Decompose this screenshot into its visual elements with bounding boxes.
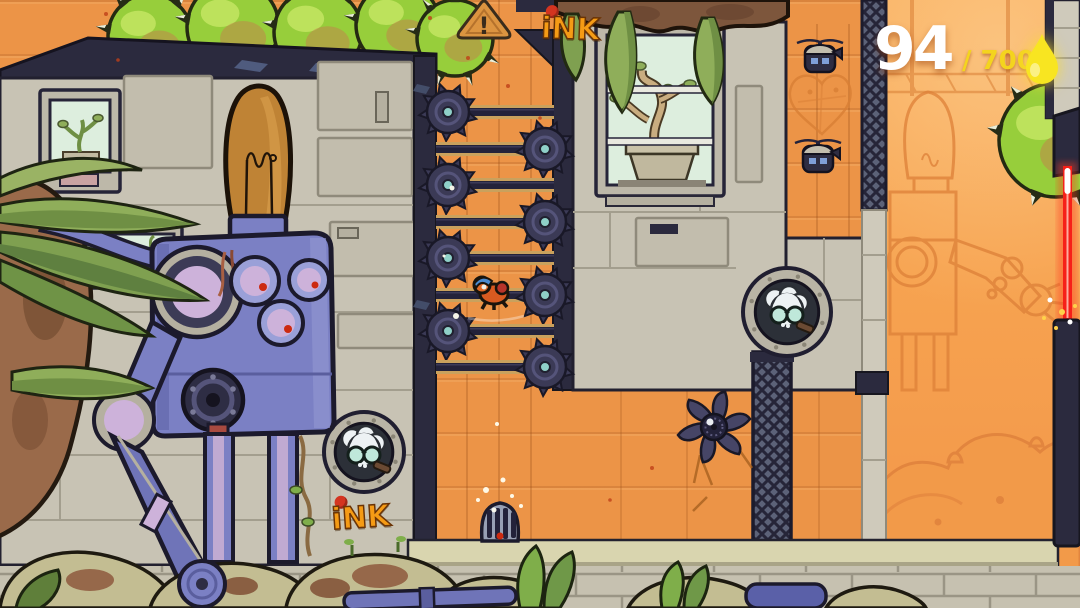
robot-valve-wheel bbox=[183, 370, 243, 430]
game-viewport[interactable]: ! bbox=[0, 0, 1080, 608]
robot-legs bbox=[205, 434, 297, 562]
robot-bulb-head bbox=[226, 86, 291, 222]
bottom-foreground bbox=[0, 536, 926, 608]
robot-arm-wheel bbox=[179, 561, 225, 607]
